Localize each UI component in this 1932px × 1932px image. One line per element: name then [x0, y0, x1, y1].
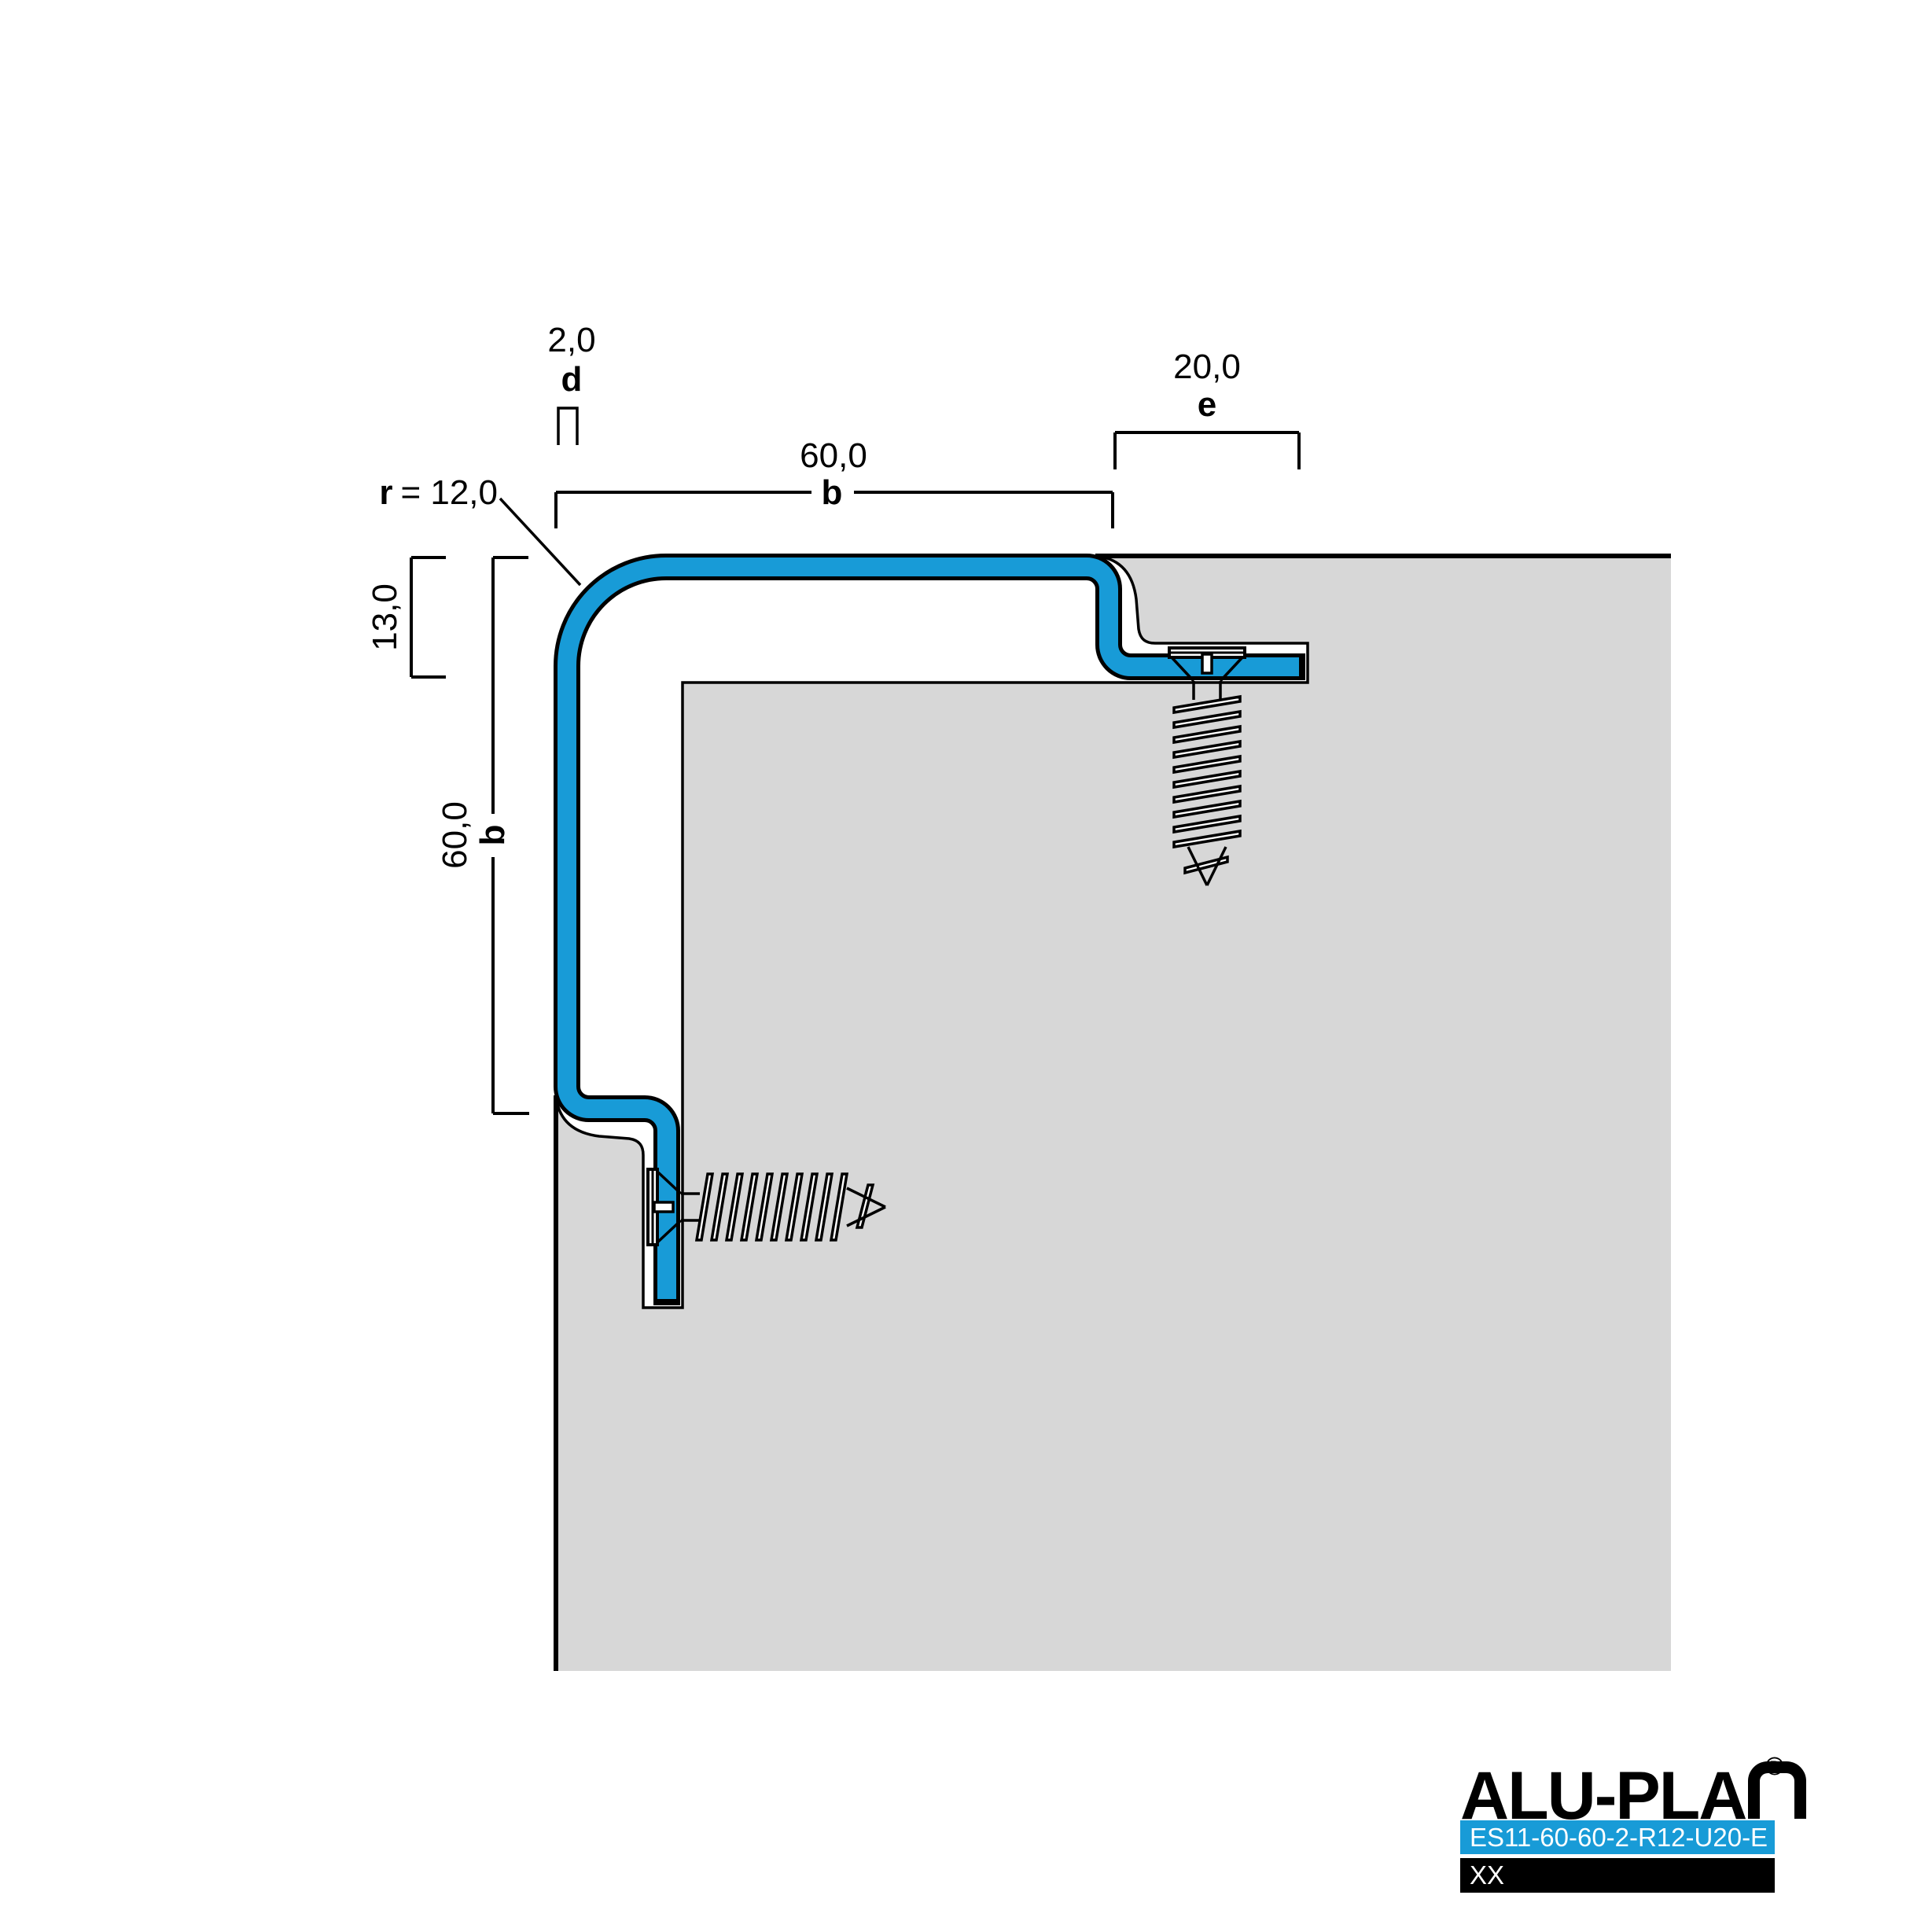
- dim-inset-13-value: 13,0: [366, 583, 404, 651]
- registered-trademark-icon: ®: [1765, 1752, 1784, 1781]
- dim-thickness-d: [558, 408, 577, 445]
- dim-height-b-left-symbol: b: [473, 825, 512, 846]
- dim-thickness-bracket: [558, 408, 577, 445]
- dim-width-b-top-value: 60,0: [800, 436, 867, 475]
- logo-alu-plan: ALU-PLA: [1460, 1761, 1775, 1816]
- variant-bar: XX: [1460, 1858, 1775, 1893]
- board-body: [556, 556, 1671, 1671]
- dim-thickness-symbol: d: [561, 360, 583, 399]
- dim-thickness-value: 2,0: [547, 321, 595, 359]
- dim-inset-13-line: [411, 558, 446, 677]
- dim-edge-e-symbol: e: [1198, 385, 1216, 424]
- screw-drive-slot: [1202, 654, 1212, 673]
- product-code-bar: ES11-60-60-2-R12-U20-E: [1460, 1820, 1775, 1854]
- dim-edge-e: [1115, 432, 1299, 469]
- substrate-board: [556, 556, 1671, 1671]
- technical-drawing: 2,0 d r= 12,0 60,0 b 20,0 e 13,0 60: [0, 0, 1932, 1932]
- dim-radius-label: r= 12,0: [379, 473, 498, 512]
- dim-inset-13: [411, 558, 446, 677]
- dim-height-b-left-value: 60,0: [436, 801, 474, 869]
- dim-edge-e-line: [1115, 432, 1299, 469]
- dim-edge-e-value: 20,0: [1173, 348, 1241, 386]
- dim-radius: r= 12,0: [379, 473, 580, 585]
- dim-radius-leader-line: [500, 499, 580, 585]
- dim-width-b-top-symbol: b: [822, 473, 843, 512]
- drawing-page: 2,0 d r= 12,0 60,0 b 20,0 e 13,0 60: [0, 0, 1932, 1932]
